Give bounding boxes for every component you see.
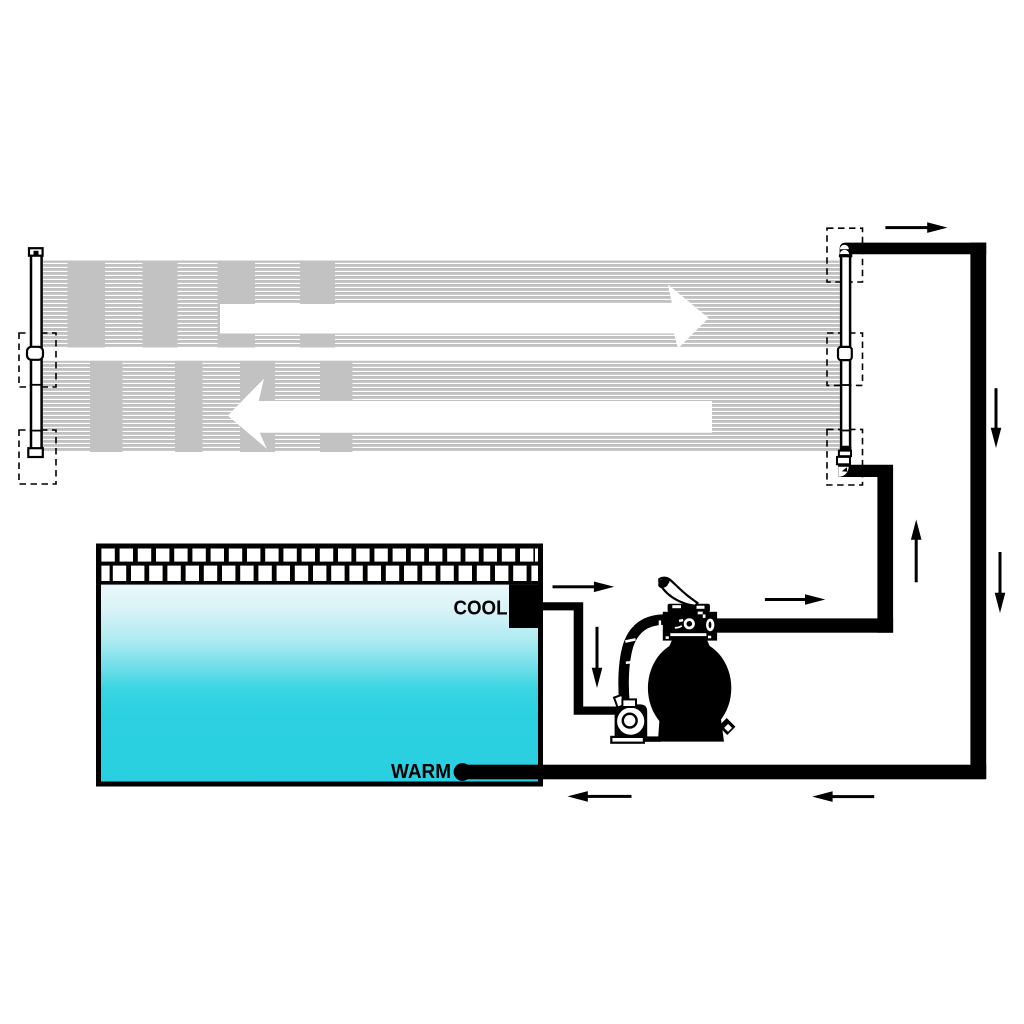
svg-text:COOL: COOL: [454, 598, 508, 620]
svg-text:WARM: WARM: [391, 761, 451, 783]
